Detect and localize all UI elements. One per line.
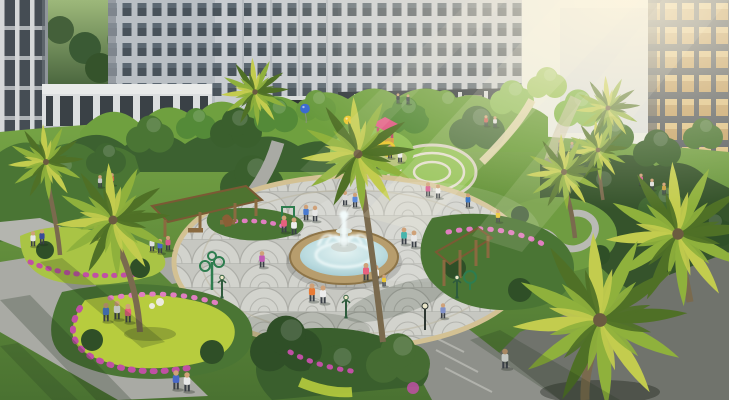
render-canvas — [0, 0, 729, 400]
sun-rays — [0, 0, 729, 400]
courtyard-render — [0, 0, 729, 400]
